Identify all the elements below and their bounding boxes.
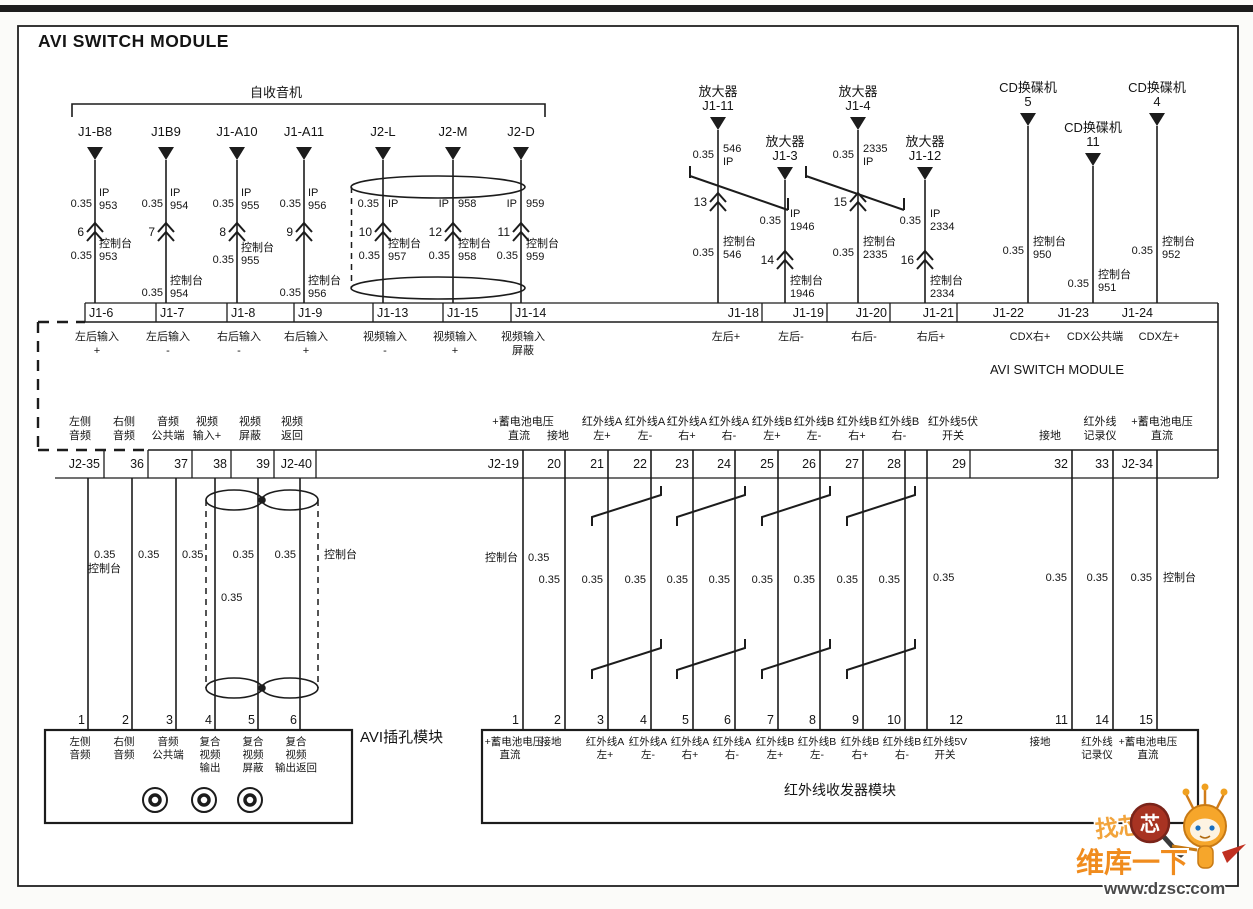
pin-function: 音频 [157,414,179,428]
circuit-name: 控制台 [308,273,341,287]
pin-function: 红外线B [841,735,880,748]
wire-gauge: 0.35 [233,549,254,561]
connector-label: J1-A11 [284,124,324,139]
wire-gauge: 0.35 [833,247,854,259]
pin-function: 红外线B [794,414,834,428]
pin-number: 9 [852,713,859,727]
pin-id: J2-34 [1122,457,1153,471]
circuit-number: 959 [526,251,544,263]
pin-function: 直流 [1151,428,1173,442]
splice-number: 12 [429,225,443,239]
pin-function: 屏蔽 [243,762,264,774]
circuit-number: 956 [308,200,326,212]
pin-function: 左- [638,429,653,442]
pin-function: 直流 [1138,748,1160,761]
pin-function: CDX公共端 [1067,330,1123,343]
pin-number: 14 [1095,713,1109,727]
pin-id: J1-18 [728,306,759,320]
pin-function: 直流 [500,748,521,761]
pin-function: 视频 [286,748,307,761]
circuit-name: IP [170,187,180,199]
wire-gauge: 0.35 [1131,572,1152,584]
wiring-diagram: AVI SWITCH MODULE 自收音机 J1-B8 0.35 IP 953… [0,0,1253,909]
jack-module-label: AVI插孔模块 [360,729,443,746]
circuit-name: 控制台 [170,273,203,287]
pin-function: - [383,345,387,357]
wire-gauge: 0.35 [625,574,646,586]
circuit-number: 959 [526,198,544,210]
pin-id: 23 [675,457,689,471]
pin-function: 音频 [69,428,91,442]
pin-function: 复合 [243,735,264,748]
pin-number: 12 [949,713,963,727]
connector-label: J1-3 [772,148,797,163]
pin-id: J1-22 [993,306,1024,320]
pin-function: 左- [807,429,822,442]
wire-gauge: 0.35 [794,574,815,586]
pin-function: +蓄电池电压 [1131,415,1192,428]
circuit-name: 控制台 [88,561,121,575]
circuit-name: 控制台 [1098,267,1131,281]
pin-function: 红外线5V [923,735,967,748]
wire-gauge: 0.35 [709,574,730,586]
pin-number: 2 [122,713,129,727]
scan-edge-bar [0,5,1253,12]
circuit-name: IP [388,198,398,210]
pin-function: 红外线A [713,735,752,748]
connector-label: J1-A10 [216,124,257,139]
connector-label: 11 [1086,134,1100,149]
pin-id: 39 [256,457,270,471]
wire-gauge: 0.35 [879,574,900,586]
pin-function: 红外线A [709,414,750,428]
circuit-name: IP [308,187,318,199]
page-title: AVI SWITCH MODULE [38,31,229,51]
wire-gauge: 0.35 [693,149,714,161]
wire-gauge: 0.35 [138,549,159,561]
ir-module-label: 红外线收发器模块 [784,782,896,798]
wire-gauge: 0.35 [539,574,560,586]
circuit-name: 控制台 [790,273,823,287]
wire-gauge: 0.35 [497,250,518,262]
pin-id: J2-19 [488,457,519,471]
circuit-number: 546 [723,143,741,155]
wire-gauge: 0.35 [760,215,781,227]
pin-id: J1-21 [923,306,954,320]
pin-function: + [303,345,309,357]
circuit-name: 控制台 [99,236,132,250]
wire-gauge: 0.35 [582,574,603,586]
pin-function: 复合 [286,735,307,748]
pin-function: 复合 [200,735,221,748]
connector-label: J2-L [370,124,395,139]
pin-number: 1 [78,713,85,727]
device-label: CD换碟机 [999,80,1057,95]
pin-function: 左后输入 [146,329,190,343]
circuit-name: 控制台 [863,234,896,248]
pin-number: 11 [1055,713,1068,727]
wire-gauge: 0.35 [221,592,242,604]
pin-id: 28 [887,457,901,471]
pin-number: 7 [767,713,774,727]
pin-function: 音频 [114,748,135,761]
pin-function: 屏蔽 [512,344,534,357]
pin-id: J1-8 [231,306,255,320]
pin-number: 4 [205,713,212,727]
pin-function: 输入+ [193,428,221,442]
wire-gauge: 0.35 [429,250,450,262]
pin-function: 左后输入 [75,329,119,343]
pin-function: 屏蔽 [239,429,261,442]
circuit-name: 控制台 [1162,234,1195,248]
circuit-name: 控制台 [1033,234,1066,248]
wire-gauge: 0.35 [213,198,234,210]
pin-id: J1-20 [856,306,887,320]
pin-function: 右侧 [114,735,135,748]
pin-function: 视频 [196,414,218,428]
pin-function: 右侧 [113,414,135,428]
pin-id: 27 [845,457,859,471]
pin-function: 左+ [593,429,610,442]
pin-number: 3 [166,713,173,727]
connector-label: J1-11 [702,98,734,113]
pin-number: 8 [809,713,816,727]
pin-function: 记录仪 [1084,429,1117,442]
pin-number: 4 [640,713,647,727]
circuit-number: 957 [388,251,406,263]
pin-function: 视频输入 [433,329,477,343]
pin-number: 15 [1139,713,1153,727]
pin-function: 返回 [281,429,303,442]
pin-id: 29 [952,457,966,471]
wire-gauge: 0.35 [667,574,688,586]
pin-function: +蓄电池电压 [485,735,544,748]
pin-function: - [237,345,241,357]
wire-gauge: 0.35 [1046,572,1067,584]
pin-function: 左- [641,748,655,761]
radio-label: 自收音机 [250,85,302,100]
pin-function: 公共端 [152,429,185,442]
pin-function: 公共端 [152,748,184,761]
wire-gauge: 0.35 [837,574,858,586]
circuit-name: IP [930,208,940,220]
wire-gauge: 0.35 [1132,245,1153,257]
connector-label: 4 [1153,94,1160,109]
pin-function: 左侧 [69,415,91,428]
scanned-wiring-diagram-page: AVI SWITCH MODULE 自收音机 J1-B8 0.35 IP 953… [0,0,1253,909]
pin-function: 右+ [848,428,865,442]
wire-gauge: 0.35 [1068,278,1089,290]
pin-number: 5 [682,713,689,727]
wire-gauge: 0.35 [833,149,854,161]
circuit-number: 1946 [790,221,814,233]
pin-function: 红外线A [586,735,625,748]
pin-function: 右+ [682,748,699,761]
pin-function: 红外线A [667,414,708,428]
pin-function: 音频 [70,748,91,761]
pin-function: 开关 [935,748,956,761]
pin-function: 音频 [113,428,135,442]
circuit-number: 952 [1162,249,1180,261]
circuit-number: 958 [458,251,476,263]
circuit-number: 953 [99,251,117,263]
pin-id: 38 [213,457,227,471]
device-label: CD换碟机 [1064,120,1122,135]
pin-function: 红外线B [883,735,922,748]
circuit-number: 950 [1033,249,1051,261]
connector-label: 5 [1024,94,1031,109]
circuit-number: 1946 [790,288,814,300]
pin-function: 音频 [158,735,179,748]
splice-number: 7 [148,225,155,239]
circuit-number: 955 [241,200,259,212]
circuit-number: 954 [170,288,188,300]
pin-function: 接地 [547,429,569,442]
splice-number: 10 [359,225,373,239]
pin-function: 视频输入 [363,329,407,343]
pin-function: 视频 [200,748,221,761]
pin-function: 记录仪 [1081,749,1113,761]
pin-number: 6 [290,713,297,727]
wire-gauge: 0.35 [280,198,301,210]
circuit-name: IP [863,156,873,168]
pin-function: 红外线 [1081,735,1113,748]
pin-function: + [452,345,458,357]
pin-function: 左后+ [712,330,740,343]
pin-function: 右- [892,428,907,442]
wire-gauge: 0.35 [71,250,92,262]
circuit-name: IP [507,198,517,210]
pin-id: J1-6 [89,306,113,320]
pin-function: 输出 [200,761,221,774]
pin-id: 36 [130,457,144,471]
pin-id: 37 [174,457,188,471]
pin-function: 接地 [1030,735,1052,748]
pin-function: 左+ [597,748,614,761]
circuit-number: 956 [308,288,326,300]
wire-gauge: 0.35 [358,198,379,210]
connector-label: J1-4 [845,98,870,113]
pin-id: 33 [1095,457,1109,471]
watermark-badge: 芯 [1140,812,1160,836]
pin-id: 25 [760,457,774,471]
splice-number: 8 [219,225,226,239]
pin-function: 接地 [1039,429,1061,442]
pin-function: 红外线B [752,414,792,428]
pin-number: 1 [512,713,519,727]
watermark-url: www.dzsc.com [1103,879,1225,898]
wire-gauge: 0.35 [1087,572,1108,584]
pin-function: 红外线5伏 [928,414,978,428]
pin-function: 红外线B [837,414,877,428]
pin-function: 右- [722,428,737,442]
wire-gauge: 0.35 [213,254,234,266]
circuit-name: 控制台 [723,234,756,248]
circuit-name: IP [790,208,800,220]
pin-function: 红外线A [625,414,666,428]
circuit-name: 控制台 [526,236,559,250]
pin-id: J1-19 [793,306,824,320]
wire-gauge: 0.35 [275,549,296,561]
pin-id: 21 [590,457,604,471]
pin-function: 右后输入 [284,329,328,343]
connector-label: J2-M [439,124,468,139]
pin-function: 右- [895,748,909,761]
pin-function: 右后- [851,329,877,343]
connector-label: J1-12 [909,148,942,163]
circuit-name: IP [99,187,109,199]
splice-number: 14 [761,253,775,267]
pin-number: 6 [724,713,731,727]
pin-function: CDX左+ [1139,330,1180,343]
wire-gauge: 0.35 [182,549,203,561]
circuit-name: 控制台 [1163,570,1196,584]
circuit-number: 2334 [930,221,954,233]
pin-function: 左侧 [70,735,91,748]
circuit-name: 控制台 [485,550,518,564]
wire-gauge: 0.35 [142,287,163,299]
circuit-name: 控制台 [458,236,491,250]
wire-gauge: 0.35 [142,198,163,210]
pin-function: 右+ [678,428,695,442]
circuit-number: 2335 [863,143,887,155]
wire-gauge: 0.35 [528,552,549,564]
pin-function: 红外线B [798,735,837,748]
splice-number: 13 [694,195,708,209]
circuit-name: 控制台 [324,547,357,561]
circuit-name: 控制台 [241,240,274,254]
splice-number: 16 [901,253,915,267]
wire-gauge: 0.35 [1003,245,1024,257]
circuit-number: 2334 [930,288,954,300]
wire-gauge: 0.35 [900,215,921,227]
connector-label: J1B9 [151,124,181,139]
circuit-name: IP [241,187,251,199]
wire-gauge: 0.35 [693,247,714,259]
pin-function: 视频 [239,414,261,428]
pin-id: J2-35 [69,457,100,471]
pin-function: 右后+ [917,329,945,343]
circuit-name: IP [439,198,449,210]
pin-function: + [94,345,100,357]
pin-number: 5 [248,713,255,727]
pin-function: 红外线B [879,414,919,428]
pin-function: 右- [725,748,739,761]
circuit-number: 953 [99,200,117,212]
circuit-number: 951 [1098,282,1116,294]
pin-function: 视频输入 [501,329,545,343]
splice-number: 6 [77,225,84,239]
pin-id: J1-9 [298,306,322,320]
pin-function: 左+ [763,429,780,442]
pin-id: J1-23 [1058,306,1089,320]
pin-function: 左- [810,748,824,761]
device-label: 放大器 [698,84,737,99]
connector-label: J2-D [507,124,534,139]
pin-function: +蓄电池电压 [1119,735,1178,748]
circuit-number: 954 [170,200,188,212]
device-label: 放大器 [765,134,804,149]
pin-number: 10 [887,713,901,727]
pin-function: +蓄电池电压 [492,415,553,428]
pin-function: 红外线A [582,414,623,428]
pin-function: 红外线A [629,735,668,748]
pin-function: 视频 [281,414,303,428]
pin-id: J1-15 [447,306,478,320]
circuit-name: 控制台 [388,236,421,250]
splice-number: 11 [498,225,511,239]
pin-function: 红外线B [756,735,795,748]
pin-function: CDX右+ [1010,329,1051,343]
wire-gauge: 0.35 [94,549,115,561]
pin-id: 24 [717,457,731,471]
pin-id: 32 [1054,457,1068,471]
circuit-name: IP [723,156,733,168]
pin-function: 接地 [541,735,562,748]
pin-function: 右后输入 [217,329,261,343]
device-label: 放大器 [905,134,944,149]
pin-id: J1-14 [515,306,546,320]
pin-number: 2 [554,713,561,727]
wire-gauge: 0.35 [752,574,773,586]
splice-number: 9 [286,225,293,239]
circuit-number: 958 [458,198,476,210]
wire-gauge: 0.35 [71,198,92,210]
pin-function: 右+ [852,748,869,761]
pin-function: 输出返回 [275,761,317,774]
pin-function: 红外线A [671,735,710,748]
pin-id: J2-40 [281,457,312,471]
watermark-brand: 维库一下 [1076,847,1188,878]
pin-id: J1-24 [1122,306,1153,320]
device-label: CD换碟机 [1128,80,1186,95]
pin-id: J1-7 [160,306,184,320]
circuit-name: 控制台 [930,273,963,287]
pin-function: 视频 [243,748,264,761]
pin-id: 26 [802,457,816,471]
circuit-number: 955 [241,255,259,267]
pin-number: 3 [597,713,604,727]
pin-id: 20 [547,457,561,471]
pin-function: 直流 [508,428,530,442]
device-label: 放大器 [838,84,877,99]
pin-function: 开关 [942,428,964,442]
pin-function: 左+ [767,748,784,761]
connector-label: J1-B8 [78,124,112,139]
module-name: AVI SWITCH MODULE [990,362,1124,377]
circuit-number: 2335 [863,249,887,261]
circuit-number: 546 [723,249,741,261]
splice-number: 15 [834,195,848,209]
pin-id: J1-13 [377,306,408,320]
wire-gauge: 0.35 [933,572,954,584]
wire-gauge: 0.35 [359,250,380,262]
wire-gauge: 0.35 [280,287,301,299]
pin-function: 红外线 [1084,414,1117,428]
pin-id: 22 [633,457,647,471]
pin-function: - [166,345,170,357]
pin-function: 左后- [778,330,804,343]
